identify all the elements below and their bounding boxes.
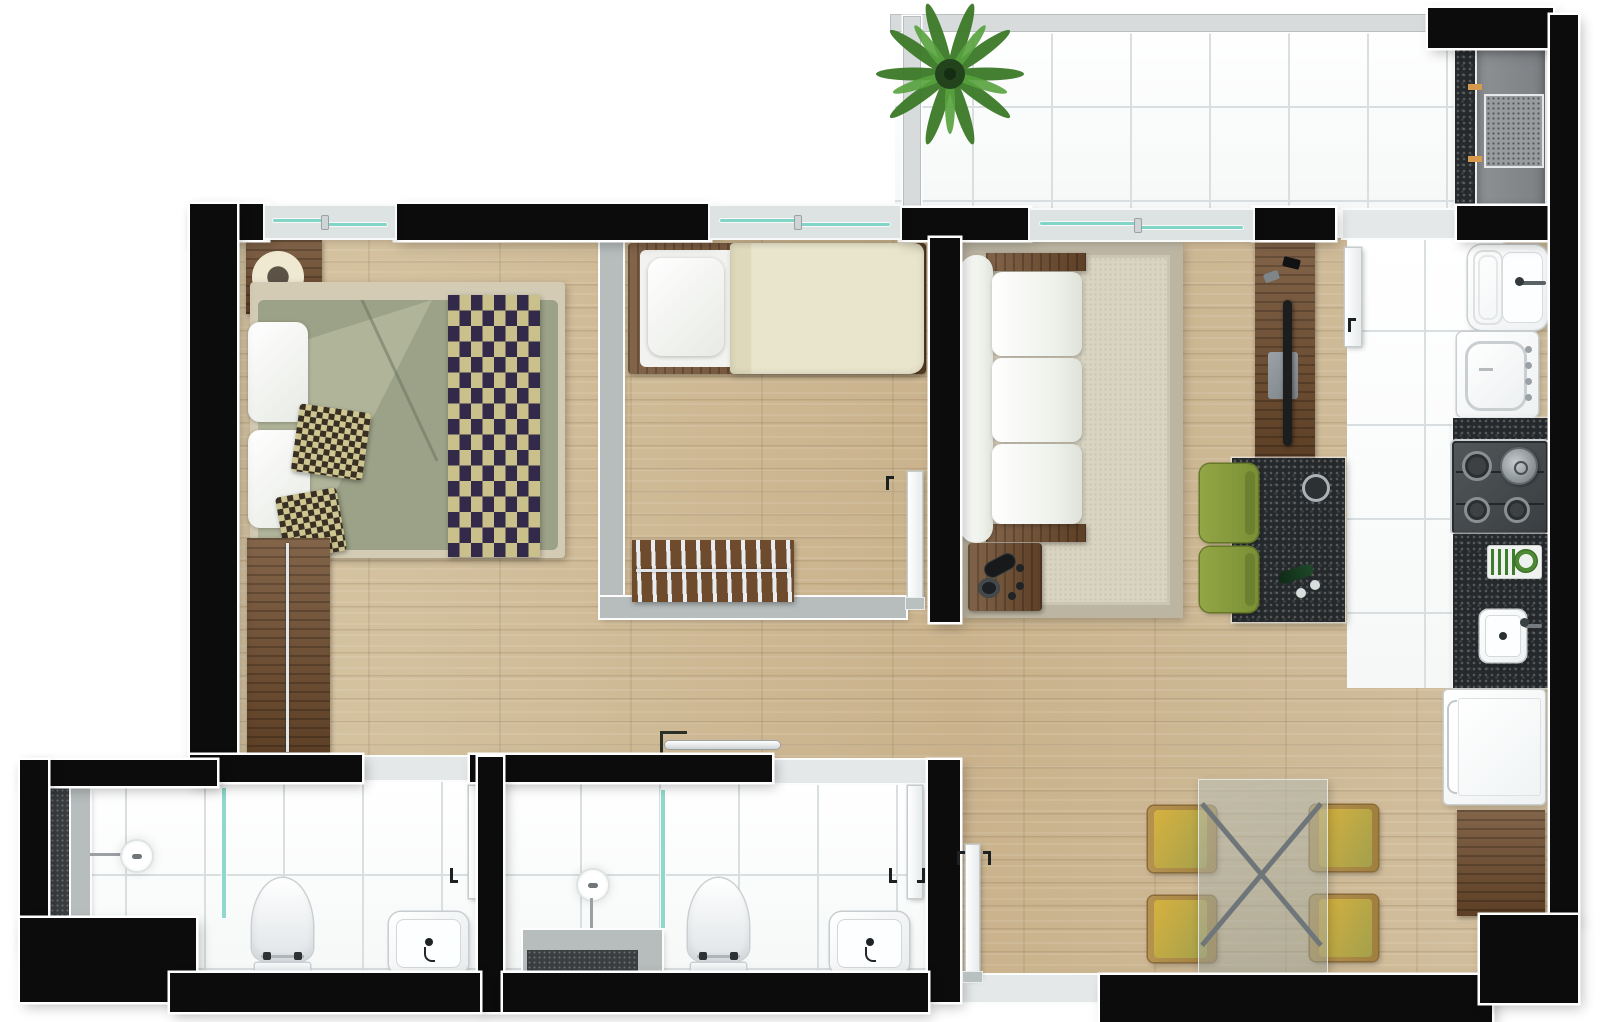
sofa-cushion	[992, 272, 1082, 356]
bathroom1-threshold	[362, 757, 470, 780]
sink-drain	[1499, 632, 1507, 640]
shower-ledge	[71, 788, 90, 918]
tub-faucet-head	[1515, 277, 1524, 286]
wall-bathroom2-east	[928, 760, 960, 1002]
dish-rack	[1487, 545, 1542, 579]
washbasin	[389, 912, 468, 975]
checkered-cushion	[291, 403, 372, 480]
burner	[1464, 497, 1490, 523]
shower-head	[578, 870, 608, 900]
wardrobe-rail	[286, 543, 289, 752]
wall	[1253, 208, 1335, 240]
sink-faucet	[1520, 618, 1529, 627]
tv	[1283, 300, 1292, 446]
fruit-bowl	[1302, 474, 1330, 502]
grill-grate	[1484, 94, 1544, 168]
wall-bathrooms-north	[470, 755, 772, 782]
remote-dial	[978, 578, 1000, 598]
door-handle	[957, 851, 991, 867]
wall	[395, 204, 710, 240]
wall	[20, 760, 217, 786]
wall-corner	[1480, 915, 1578, 1003]
single-bed-duvet	[730, 243, 924, 374]
door-handle	[889, 868, 925, 892]
wall-left	[190, 204, 237, 760]
wall	[1457, 206, 1552, 240]
window-bedroom2	[710, 206, 900, 238]
grill-granite-strip	[1455, 48, 1477, 210]
counter-sink	[1480, 610, 1526, 662]
kitchen-counter	[1453, 418, 1550, 442]
shower-stem	[590, 898, 593, 932]
dish-round-plate	[1514, 549, 1538, 573]
tub-ridges	[1478, 255, 1498, 320]
sofa-backrest	[960, 255, 993, 543]
kitchen-cabinet	[1457, 810, 1545, 916]
refrigerator	[1444, 690, 1545, 804]
washing-machine	[1457, 332, 1538, 417]
washer-door	[1465, 341, 1527, 411]
wall-right	[1550, 15, 1578, 920]
bathroom2-threshold	[772, 760, 928, 783]
fridge-door	[1458, 698, 1541, 796]
laundry-tub	[1468, 245, 1548, 330]
glasses	[1310, 580, 1320, 590]
bath-mat	[527, 950, 638, 972]
kitchen-pass-through	[1343, 210, 1458, 238]
wall-bottom	[503, 973, 928, 1012]
window-master	[265, 206, 395, 238]
floor-plan	[0, 0, 1600, 1022]
gas-cooktop	[1452, 441, 1548, 534]
wall	[900, 208, 1030, 240]
toilet	[252, 878, 313, 975]
bar-stool	[1200, 464, 1258, 542]
shower-glass-partition	[661, 790, 665, 928]
burner	[1504, 497, 1530, 523]
tub-basin	[1502, 252, 1543, 323]
sofa-frame-bottom	[986, 524, 1086, 542]
wall-bottom	[170, 973, 480, 1012]
grill-hinge-top	[1468, 84, 1482, 90]
sofa-frame-top	[986, 253, 1086, 271]
table-items	[1016, 564, 1024, 572]
pillow	[648, 258, 724, 356]
burner	[1462, 451, 1492, 481]
sofa-cushion	[992, 444, 1082, 524]
fridge-handle	[1447, 700, 1457, 794]
washer-handle	[1479, 368, 1493, 371]
shower-niche	[50, 788, 71, 918]
sofa-cushion	[992, 358, 1082, 442]
grill-hinge-bottom	[1468, 156, 1482, 162]
toilet	[688, 878, 749, 975]
door-hinge	[906, 598, 924, 609]
bar-stool	[1200, 547, 1258, 612]
door-handle	[1348, 318, 1368, 334]
door-hinge	[963, 972, 982, 982]
wall-bathroom-divider	[478, 757, 503, 1012]
shower-glass-partition	[222, 788, 226, 918]
window-living-balcony	[1030, 210, 1253, 240]
palm-plant	[872, 2, 1028, 148]
washer-controls	[1525, 346, 1532, 353]
hanger-rail	[636, 569, 790, 572]
door-handle	[886, 476, 906, 492]
washbasin	[830, 912, 909, 975]
checkered-bed-runner	[448, 295, 540, 557]
bedroom2-door	[908, 472, 922, 603]
wall-bedroom2-living	[930, 238, 960, 622]
pot	[1500, 447, 1538, 485]
glass-dining-table	[1198, 779, 1328, 974]
wall-bottom	[1100, 975, 1492, 1022]
wall	[1428, 8, 1553, 48]
partition-bedrooms	[600, 232, 623, 608]
shower-head	[122, 841, 152, 871]
